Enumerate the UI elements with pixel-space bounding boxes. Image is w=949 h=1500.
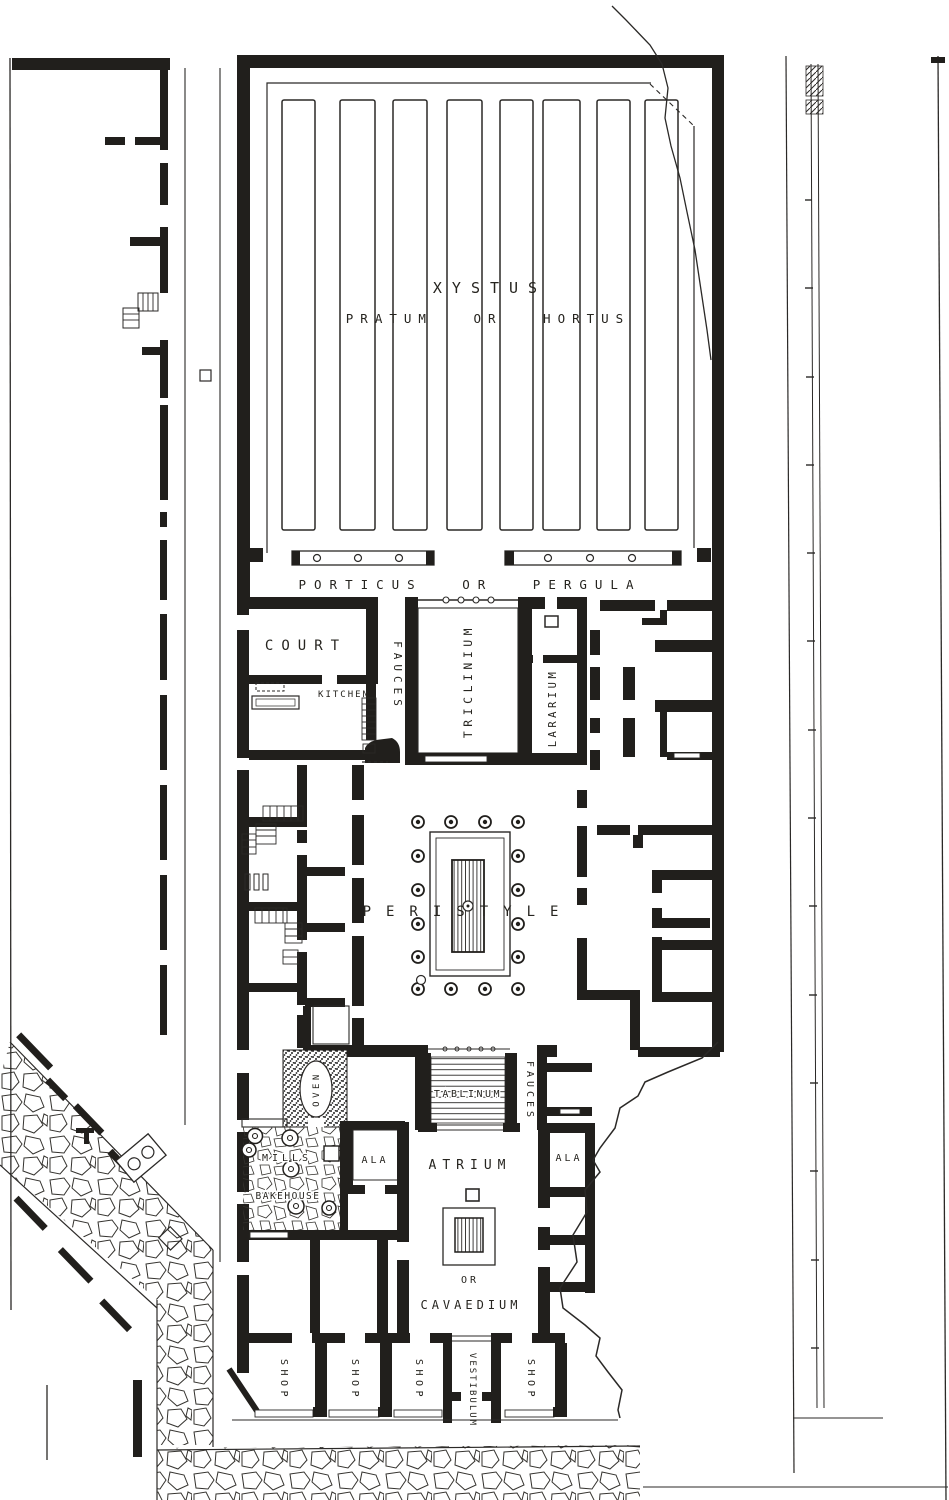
porticus-colonnade bbox=[249, 548, 711, 565]
walls-north-rooms bbox=[249, 597, 712, 770]
label-shop-2: SHOP bbox=[349, 1359, 360, 1401]
altar-marker bbox=[545, 616, 558, 627]
label-pratum-or-hortus: PRATUM OR HORTUS bbox=[346, 311, 630, 326]
label-atrium: ATRIUM bbox=[429, 1158, 512, 1173]
label-vestibulum: VESTIBULUM bbox=[467, 1353, 477, 1427]
label-fauces-south: FAUCES bbox=[524, 1061, 535, 1121]
neighbor-building-west bbox=[12, 58, 211, 1035]
label-cavaedium: CAVAEDIUM bbox=[420, 1298, 521, 1312]
label-peristyle: PERISTYLE bbox=[363, 904, 574, 920]
cistern-marker bbox=[466, 1189, 479, 1201]
label-triclinium: TRICLINIUM bbox=[461, 624, 475, 738]
label-ala-east: ALA bbox=[555, 1153, 582, 1164]
label-mills: MILLS bbox=[262, 1153, 312, 1164]
label-shop-3: SHOP bbox=[413, 1359, 424, 1401]
label-porticus-or-pergula: PORTICUS OR PERGULA bbox=[299, 577, 642, 592]
label-court: COURT bbox=[265, 638, 347, 654]
shop-corner-cut bbox=[229, 1369, 257, 1411]
impluvium bbox=[443, 1208, 495, 1265]
kneading-trough bbox=[324, 1146, 339, 1161]
floor-plan-page: XYSTUS PRATUM OR HORTUS PORTICUS OR PERG… bbox=[0, 0, 949, 1500]
label-oven: OVEN bbox=[312, 1071, 322, 1107]
bakery-area bbox=[237, 1050, 348, 1240]
label-fauces-north: FAUCES bbox=[391, 641, 404, 711]
label-xystus: XYSTUS bbox=[433, 279, 547, 297]
staircase-symbol bbox=[242, 806, 303, 854]
street-marker-square bbox=[200, 370, 211, 381]
hearth bbox=[252, 696, 299, 709]
label-kitchen: KITCHEN bbox=[318, 690, 370, 700]
label-shop-4: SHOP bbox=[525, 1359, 536, 1401]
floor-plan-canvas: XYSTUS PRATUM OR HORTUS PORTICUS OR PERG… bbox=[0, 0, 949, 1500]
staircase-symbol bbox=[123, 293, 158, 328]
label-ala-west: ALA bbox=[361, 1155, 388, 1166]
label-or: OR bbox=[461, 1275, 479, 1286]
label-shop-1: SHOP bbox=[278, 1359, 289, 1401]
label-tablinum: TABLINUM bbox=[434, 1089, 502, 1100]
label-lararium: LARARIUM bbox=[547, 669, 559, 748]
label-bakehouse: BAKEHOUSE bbox=[256, 1191, 321, 1202]
streets-east bbox=[643, 56, 948, 1500]
cobbled-street-south bbox=[157, 1445, 640, 1500]
staircase-symbol bbox=[255, 908, 302, 964]
cobbled-street-diagonal bbox=[0, 1042, 213, 1445]
walls-east-mid bbox=[597, 825, 720, 1057]
